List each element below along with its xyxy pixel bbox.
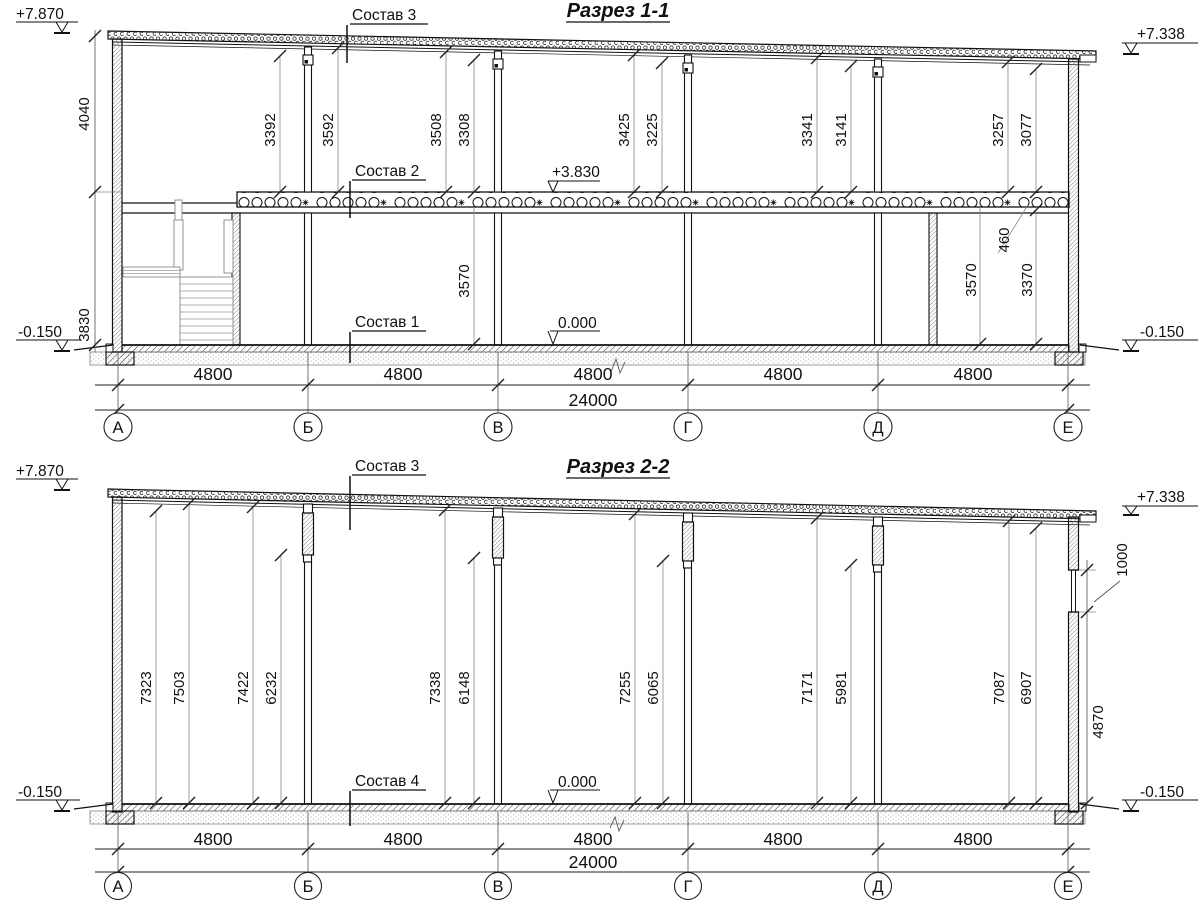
label-sostav3: Состав 3	[352, 7, 416, 24]
axis-label: В	[492, 419, 503, 437]
column-capitals	[303, 55, 883, 77]
dim-span: 4800	[764, 364, 803, 384]
dim-lower-b: 3370	[1019, 263, 1036, 296]
dim-height: 3425	[616, 113, 633, 146]
dim-total: 24000	[569, 852, 618, 872]
axis-label: В	[492, 878, 503, 896]
dim-height: 3257	[990, 113, 1007, 146]
axis-label: А	[112, 878, 123, 896]
axis-label: Г	[684, 419, 693, 437]
dim-height: 7503	[171, 671, 188, 704]
drawing-sheet: Разрез 1-1 Состав 3 Состав 2 Состав 1 +7…	[0, 0, 1200, 900]
dim-span: 4800	[764, 829, 803, 849]
dim-span: 4800	[954, 364, 993, 384]
dim-height: 7422	[235, 671, 252, 704]
dim-span: 4800	[574, 364, 613, 384]
window-opening	[1068, 570, 1079, 612]
elevation-top-right: +7.338	[1137, 489, 1185, 506]
section-drawing-svg: Разрез 1-1 Состав 3 Состав 2 Состав 1 +7…	[0, 0, 1200, 900]
dim-height: 7255	[617, 671, 634, 704]
dim-height: 6907	[1018, 671, 1035, 704]
dim-height: 7338	[427, 671, 444, 704]
dim-span: 4800	[574, 829, 613, 849]
dim-height: 3225	[644, 113, 661, 146]
elevation-top-left: +7.870	[16, 6, 64, 23]
foundation-right	[1055, 811, 1083, 824]
dim-height: 3141	[833, 113, 850, 146]
axis-label: Б	[303, 878, 314, 896]
elevation-bottom-right: -0.150	[1140, 324, 1184, 341]
elevation-marks-s2	[16, 479, 1198, 811]
staircase	[123, 200, 233, 345]
axis-bubbles-s2	[105, 873, 1082, 900]
label-sostav4: Состав 4	[355, 773, 420, 790]
dim-beam-depth: 460	[996, 227, 1013, 252]
label-sostav3: Состав 3	[355, 458, 419, 475]
dim-height: 6065	[645, 671, 662, 704]
foundation-right	[1055, 352, 1083, 365]
section-1-1-texts: Разрез 1-1 Состав 3 Состав 2 Состав 1 +7…	[16, 0, 1185, 437]
foundation-left	[106, 811, 134, 824]
dim-below-window: 4870	[1090, 705, 1107, 738]
axis-label: Б	[303, 419, 314, 437]
section-2-2-texts: Разрез 2-2 Состав 3 Состав 4 +7.870 +7.3…	[16, 456, 1185, 896]
section-1-title: Разрез 1-1	[567, 0, 670, 22]
dim-height: 3508	[428, 113, 445, 146]
dim-height: 3341	[799, 113, 816, 146]
section-2-title: Разрез 2-2	[567, 456, 670, 478]
dim-lower-a: 3570	[963, 263, 980, 296]
elevation-floor: 0.000	[558, 774, 597, 791]
axis-label: Е	[1062, 878, 1073, 896]
elevation-bottom-right: -0.150	[1140, 784, 1184, 801]
elevation-top-right: +7.338	[1137, 26, 1185, 43]
elevation-slab: +3.830	[552, 164, 600, 181]
dim-total: 24000	[569, 390, 618, 410]
axis-bubbles-s1	[104, 413, 1082, 441]
dim-span: 4800	[194, 829, 233, 849]
dim-height: 3077	[1018, 113, 1035, 146]
dim-window-height: 1000	[1114, 543, 1131, 576]
dim-side-lower: 3830	[76, 308, 93, 341]
dim-height: 3308	[456, 113, 473, 146]
dim-height: 3392	[262, 113, 279, 146]
dim-height: 5981	[833, 671, 850, 704]
foundation-left	[106, 352, 134, 365]
dim-span: 4800	[954, 829, 993, 849]
axis-label: Г	[684, 878, 693, 896]
dim-span: 4800	[384, 364, 423, 384]
label-sostav2: Состав 2	[355, 163, 419, 180]
axis-label: Е	[1062, 419, 1073, 437]
elevation-top-left: +7.870	[16, 463, 64, 480]
dim-height: 7171	[799, 671, 816, 704]
dim-height: 6232	[263, 671, 280, 704]
dim-height: 6148	[456, 671, 473, 704]
axis-label: Д	[872, 419, 883, 437]
axis-label: Д	[872, 878, 883, 896]
dim-span: 4800	[194, 364, 233, 384]
dim-height: 7087	[991, 671, 1008, 704]
hall-columns	[303, 504, 884, 804]
dim-height: 3592	[320, 113, 337, 146]
dim-span: 4800	[384, 829, 423, 849]
dim-side-upper: 4040	[76, 97, 93, 130]
axis-label: А	[112, 419, 123, 437]
label-sostav1: Состав 1	[355, 314, 419, 331]
partition-wall	[929, 213, 937, 345]
elevation-bottom-left: -0.150	[18, 324, 62, 341]
elevation-floor: 0.000	[558, 315, 597, 332]
dim-lower-mid: 3570	[456, 264, 473, 297]
elevation-bottom-left: -0.150	[18, 784, 62, 801]
dim-height: 7323	[138, 671, 155, 704]
